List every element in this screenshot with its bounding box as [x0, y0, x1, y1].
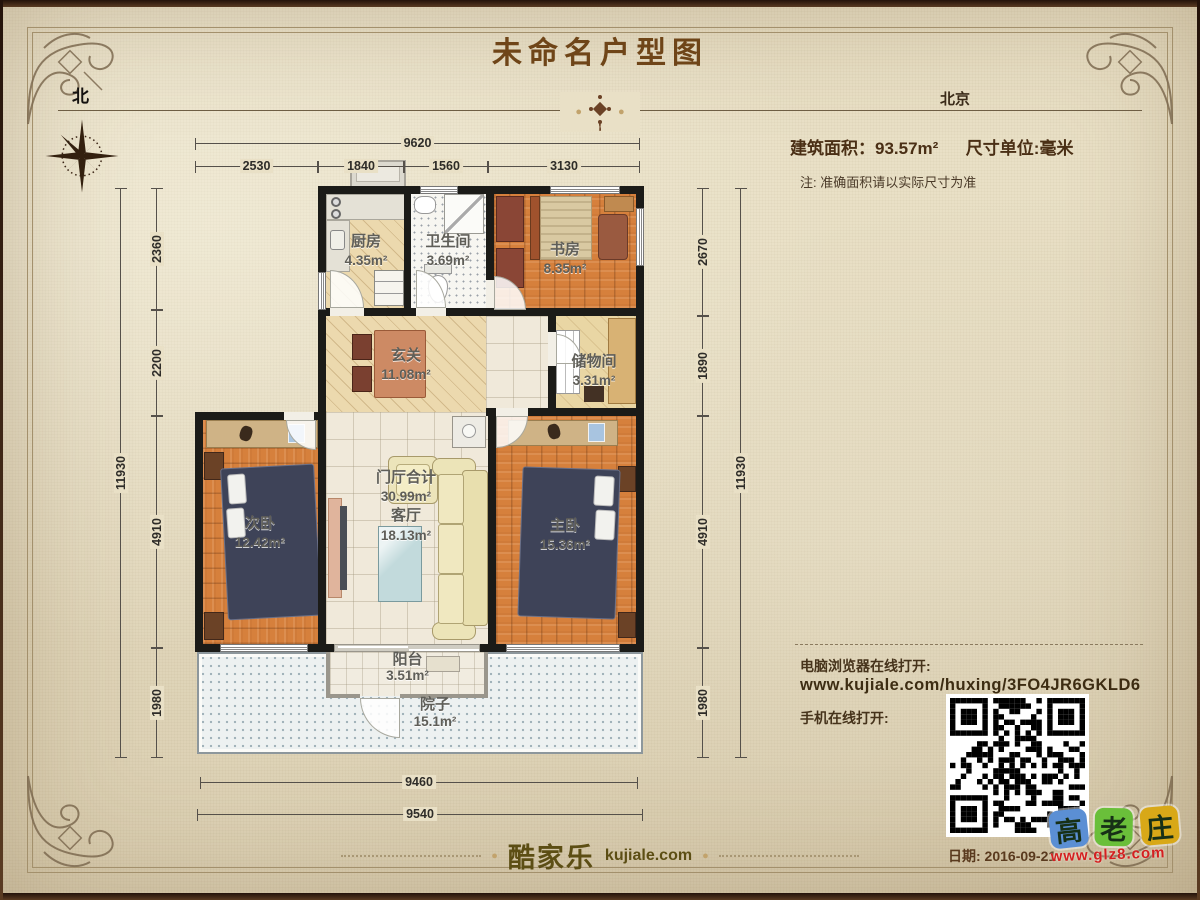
watermark-tile: 老 [1095, 808, 1134, 847]
balcony-wall [484, 652, 488, 698]
dim-right-seg: 1980 [702, 648, 703, 758]
ornament-dot-left: ● [575, 106, 582, 118]
dim-top-seg: 1840 [318, 166, 404, 167]
dim-label: 1980 [150, 686, 164, 720]
dim-label: 1560 [429, 159, 463, 173]
watermark-char: 老 [1100, 807, 1128, 846]
shirt-icon [588, 423, 605, 442]
room-name: 次卧 [205, 514, 315, 534]
page-title: 未命名户型图 [0, 28, 1200, 72]
room-name: 玄关 [346, 346, 466, 366]
room-area: 15.36m² [505, 536, 625, 554]
wall [195, 412, 203, 652]
pillow [593, 475, 615, 506]
dashed-divider [795, 644, 1143, 645]
room-label-living: 门厅合计 30.99m² 客厅 18.13m² [336, 468, 476, 545]
stove-burner [331, 197, 341, 207]
wall [326, 644, 334, 652]
room-area: 30.99m² [336, 488, 476, 506]
watermark-tiles: 高 老 庄 [1049, 806, 1182, 849]
door-opening [486, 280, 494, 308]
dim-label: 1980 [696, 686, 710, 720]
door-opening [330, 308, 364, 316]
washer-drum [462, 424, 476, 438]
dim-left-seg: 1980 [156, 648, 157, 758]
watermark-char: 高 [1053, 808, 1084, 850]
dim-label: 2530 [240, 159, 274, 173]
bathroom-sink [414, 196, 436, 214]
ornament-dot-right: ● [618, 106, 625, 118]
dim-label: 9540 [403, 807, 437, 821]
header-ornament: ● ● [560, 92, 640, 132]
dim-bottom-outer: 9540 [197, 814, 643, 815]
accuracy-note: 注: 准确面积请以实际尺寸为准 [800, 172, 976, 191]
room-area: 11.08m² [346, 366, 466, 384]
city-label: 北京 [900, 88, 1010, 109]
dim-bottom-inner: 9460 [200, 782, 638, 783]
pillow [227, 473, 247, 504]
nightstand [618, 466, 636, 492]
room-area: 18.13m² [336, 527, 476, 545]
dim-label: 1840 [344, 159, 378, 173]
room-area: 3.31m² [548, 372, 640, 390]
room-area: 4.35m² [326, 252, 406, 270]
room-label-storage: 储物间 3.31m² [548, 352, 640, 390]
room-label-master: 主卧 15.36m² [505, 516, 625, 554]
page-border-left [0, 0, 3, 900]
dim-left-total: 11930 [120, 188, 121, 758]
building-area-value: 建筑面积：93.57m² [790, 139, 938, 158]
building-area-line: 建筑面积：93.57m² 尺寸单位:毫米 [790, 134, 1073, 159]
north-label: 北 [72, 82, 89, 107]
window [506, 644, 620, 652]
window [636, 208, 644, 266]
study-cabinet [496, 196, 524, 242]
balcony-wall [330, 694, 360, 698]
room-name: 厨房 [326, 232, 406, 252]
share-url: www.kujiale.com/huxing/3FO4JR6GKLD6 [800, 676, 1141, 695]
window [318, 272, 326, 310]
room-label-study: 书房 8.35m² [500, 240, 630, 278]
dim-label: 2360 [150, 232, 164, 266]
dim-top-seg: 2530 [195, 166, 318, 167]
watermark-char: 庄 [1144, 805, 1174, 846]
dim-right-seg: 4910 [702, 416, 703, 648]
wall [488, 412, 496, 652]
dim-label: 1890 [696, 349, 710, 383]
room-label-second-bedroom: 次卧 12.42m² [205, 514, 315, 552]
window [550, 186, 620, 194]
wall [548, 316, 556, 332]
wall [528, 408, 644, 416]
wall [480, 644, 488, 652]
room-name: 门厅合计 [336, 468, 476, 488]
dim-right-total: 11930 [740, 188, 741, 758]
room-name: 储物间 [548, 352, 640, 372]
stove-burner [331, 209, 341, 219]
dim-label: 2670 [696, 235, 710, 269]
kujiale-logo-cn: 酷家乐 [508, 836, 595, 875]
nightstand [204, 612, 224, 640]
dim-left-seg: 2200 [156, 310, 157, 416]
dim-left-seg: 4910 [156, 416, 157, 648]
kujiale-logo-en: kujiale.com [605, 847, 692, 865]
room-label-bathroom: 卫生间 3.69m² [410, 232, 486, 270]
room-name: 院子 [370, 696, 500, 714]
dim-label: 9460 [402, 775, 436, 789]
watermark: 高 老 庄 www.glz8.com [1049, 806, 1183, 866]
door-opening [496, 408, 528, 416]
room-label-balcony: 阳台 3.51m² [350, 651, 465, 684]
fridge [374, 270, 404, 306]
dimension-unit-label: 尺寸单位:毫米 [966, 139, 1074, 158]
footer-dot: ● [702, 850, 709, 862]
dim-right-seg: 2670 [702, 188, 703, 316]
dim-label: 11930 [114, 453, 128, 493]
room-area: 3.51m² [350, 668, 465, 684]
footer-dotted-line [341, 855, 481, 857]
dim-top-seg: 1560 [404, 166, 488, 167]
room-area: 12.42m² [205, 534, 315, 552]
sofa-seat [438, 574, 464, 624]
dim-label: 4910 [150, 515, 164, 549]
study-desk [604, 196, 634, 212]
door-opening [416, 308, 446, 316]
room-name: 卫生间 [410, 232, 486, 252]
window [220, 644, 308, 652]
door-opening [284, 412, 314, 420]
page-border-bottom [0, 893, 1200, 900]
dim-label: 3130 [547, 159, 581, 173]
room-label-hall: 玄关 11.08m² [346, 346, 466, 384]
balcony-wall [326, 652, 330, 698]
room-name: 书房 [500, 240, 630, 260]
room-label-kitchen: 厨房 4.35m² [326, 232, 406, 270]
dim-label: 9620 [401, 136, 435, 150]
footer-dot: ● [491, 850, 498, 862]
page-border-top [0, 0, 1200, 7]
room-name: 客厅 [336, 506, 476, 526]
wall [318, 412, 326, 652]
room-name: 阳台 [350, 651, 465, 668]
dim-top-total: 9620 [195, 143, 640, 144]
dim-label: 2200 [150, 346, 164, 380]
mobile-open-label: 手机在线打开: [800, 708, 889, 728]
nightstand [618, 612, 636, 638]
shower [444, 194, 484, 234]
watermark-tile: 庄 [1139, 805, 1180, 846]
dim-label: 4910 [696, 515, 710, 549]
dim-top-seg: 3130 [488, 166, 640, 167]
dim-left-seg: 2360 [156, 188, 157, 310]
date-label: 日期: 2016-09-21 [948, 846, 1056, 866]
dim-right-seg: 1890 [702, 316, 703, 416]
footer-dotted-line [719, 855, 859, 857]
room-area: 15.1m² [370, 714, 500, 730]
fleur-ornament-icon [588, 93, 612, 131]
floor-corridor [486, 316, 548, 416]
room-area: 8.35m² [500, 260, 630, 278]
compass-icon [44, 118, 120, 194]
wall [486, 186, 494, 280]
pc-open-label: 电脑浏览器在线打开: [800, 656, 931, 676]
dim-label: 11930 [734, 453, 748, 493]
watermark-tile: 高 [1048, 808, 1090, 850]
room-area: 3.69m² [410, 252, 486, 270]
room-label-yard: 院子 15.1m² [370, 696, 500, 730]
window [420, 186, 458, 194]
room-name: 主卧 [505, 516, 625, 536]
